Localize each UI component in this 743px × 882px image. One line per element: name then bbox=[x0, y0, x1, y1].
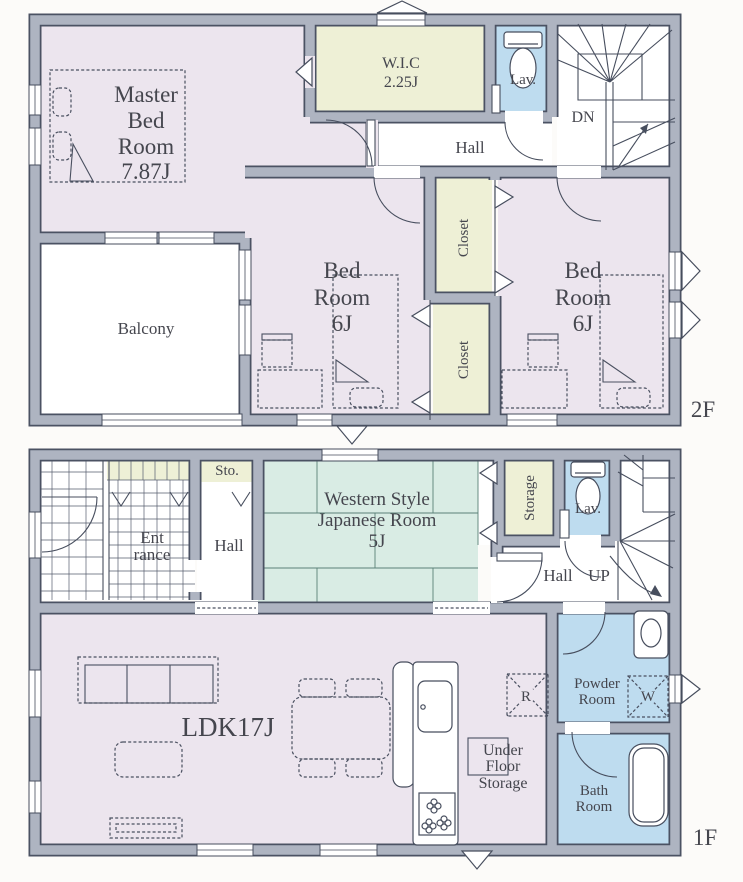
vanity-sink-icon bbox=[634, 611, 668, 658]
label-washer: W bbox=[641, 689, 656, 705]
vent-triangle-top bbox=[377, 1, 427, 13]
label-japanese-line2: Japanese Room bbox=[318, 510, 437, 531]
shutter-triangle-2f-a bbox=[682, 252, 700, 290]
label-entrance-line2: rance bbox=[134, 545, 171, 564]
floor-2f: Master Bed Room 7.87J W.I.C 2.25J Lav. H… bbox=[29, 1, 715, 444]
label-ufs-line2: Floor bbox=[486, 758, 521, 775]
vent-triangle-bottom-2f bbox=[337, 426, 367, 444]
label-sto: Sto. bbox=[215, 463, 239, 479]
label-refrigerator: R bbox=[521, 689, 531, 705]
label-lav-1f: Lav. bbox=[575, 501, 601, 517]
label-master-line1: Master bbox=[114, 82, 178, 107]
vent-triangle-bottom-1f bbox=[462, 851, 492, 869]
label-japanese-line1: Western Style bbox=[324, 489, 430, 510]
porch-floor bbox=[35, 455, 105, 600]
shutter-triangle-2f-b bbox=[682, 302, 700, 338]
label-lav-2f: Lav. bbox=[510, 72, 536, 88]
label-wic: W.I.C bbox=[382, 55, 420, 72]
label-bath-line2: Room bbox=[576, 799, 613, 815]
label-ufs-line3: Storage bbox=[479, 775, 528, 792]
label-ufs-line1: Under bbox=[483, 742, 524, 759]
label-closet-bottom: Closet bbox=[456, 340, 472, 379]
label-bedroom-right-line1: Bed bbox=[564, 258, 602, 283]
label-master-line3: Room bbox=[118, 134, 174, 159]
label-closet-top: Closet bbox=[456, 218, 472, 257]
label-up: UP bbox=[588, 566, 610, 585]
label-master-line4: 7.87J bbox=[121, 159, 170, 184]
shutter-triangle-1f bbox=[682, 675, 700, 703]
label-bedroom-right-line3: 6J bbox=[573, 311, 594, 336]
floor-1f: Sto. Ent rance Hall Western Style Japane… bbox=[29, 449, 717, 869]
label-bedroom-left-line1: Bed bbox=[323, 258, 361, 283]
kitchen-sink-icon bbox=[418, 681, 452, 732]
lav-1f-door-leaf bbox=[560, 510, 569, 538]
label-powder-line2: Room bbox=[579, 692, 616, 708]
ldk-floor bbox=[40, 612, 552, 845]
floor-tag-1f: 1F bbox=[693, 825, 717, 850]
hallup-door-leaf bbox=[497, 553, 542, 561]
label-ldk: LDK17J bbox=[182, 712, 275, 742]
label-master-line2: Bed bbox=[127, 108, 165, 133]
floor-plan-page: Master Bed Room 7.87J W.I.C 2.25J Lav. H… bbox=[0, 0, 743, 882]
label-balcony: Balcony bbox=[118, 319, 175, 338]
label-bedroom-left-line2: Room bbox=[314, 285, 370, 310]
label-bath-line1: Bath bbox=[580, 783, 609, 799]
floor-tag-2f: 2F bbox=[691, 397, 715, 422]
label-dn: DN bbox=[571, 109, 595, 126]
label-storage: Storage bbox=[522, 475, 538, 521]
label-powder-line1: Powder bbox=[574, 676, 620, 692]
label-bedroom-right-line2: Room bbox=[555, 285, 611, 310]
master-vestibule-floor bbox=[310, 122, 372, 172]
label-japanese-line3: 5J bbox=[369, 531, 386, 552]
label-hall-1f: Hall bbox=[214, 536, 244, 555]
label-wic-size: 2.25J bbox=[384, 74, 418, 91]
label-bedroom-left-line3: 6J bbox=[332, 311, 353, 336]
label-hall-2f: Hall bbox=[455, 138, 485, 157]
label-hall-up-hall: Hall bbox=[543, 566, 573, 585]
lav-2f-door-leaf bbox=[492, 85, 500, 113]
stove-icon bbox=[419, 793, 455, 835]
bathtub-icon bbox=[629, 744, 668, 826]
floor-plan-drawing: Master Bed Room 7.87J W.I.C 2.25J Lav. H… bbox=[0, 0, 743, 882]
